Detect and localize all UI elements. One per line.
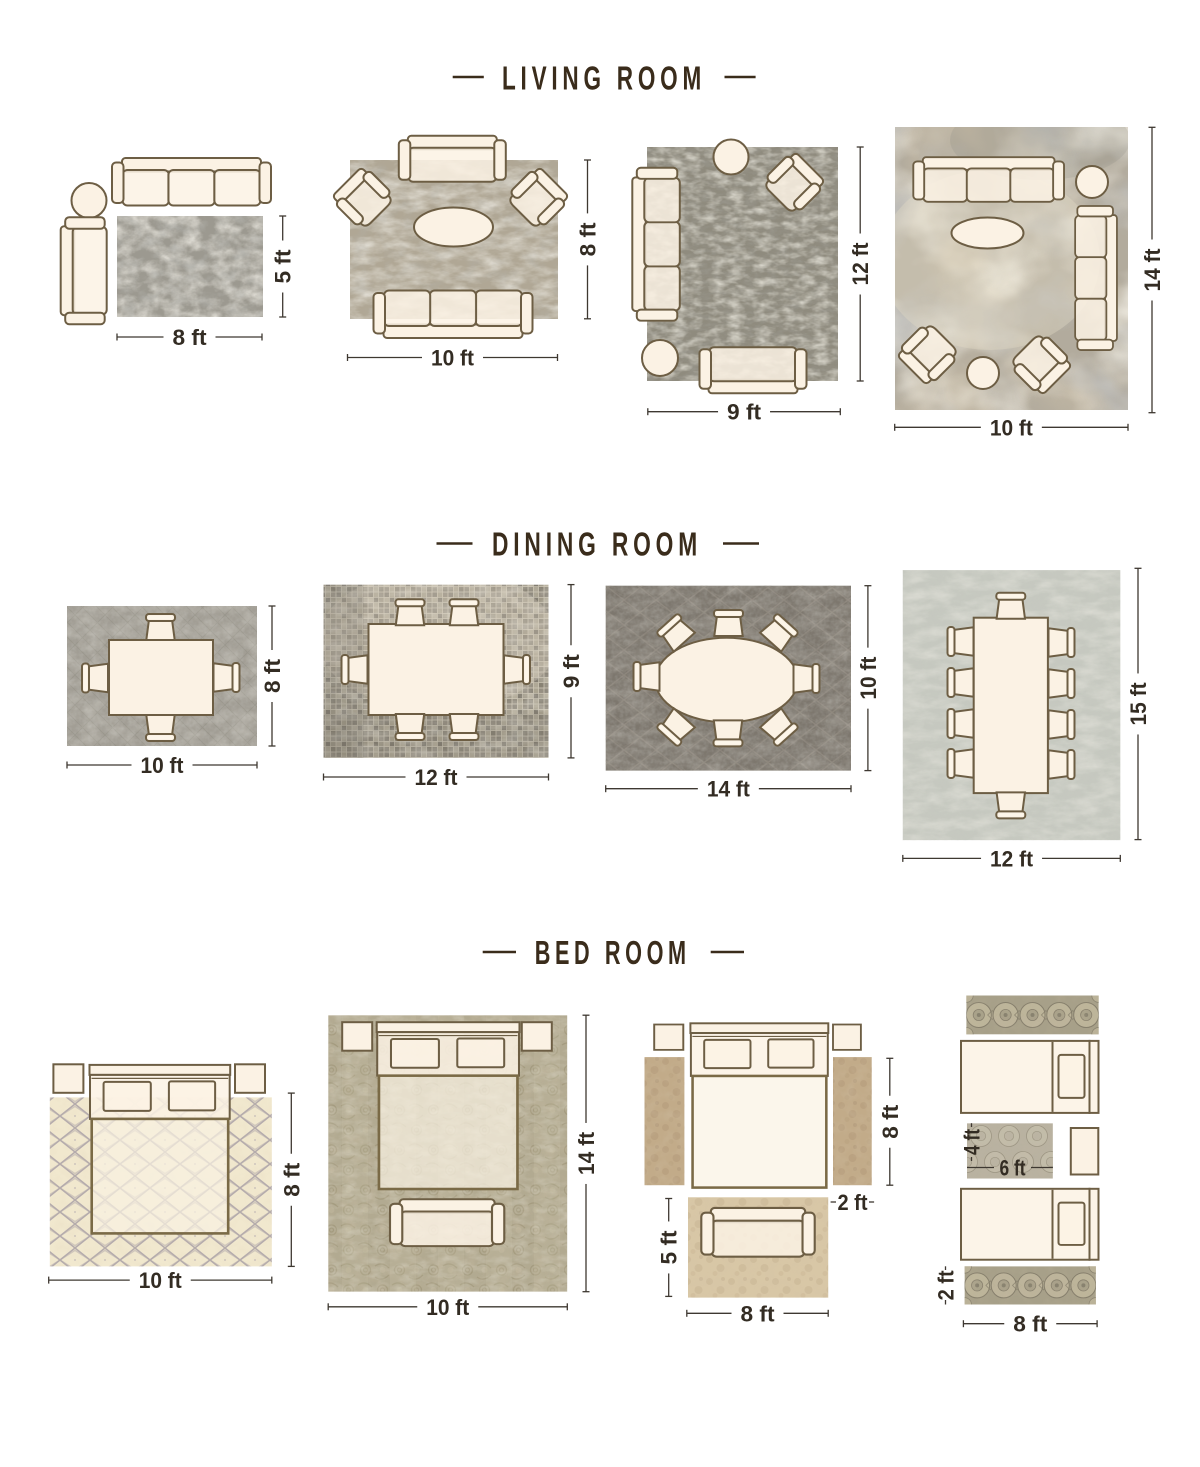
- svg-text:10 ft: 10 ft: [426, 1295, 470, 1320]
- svg-text:10 ft: 10 ft: [139, 1268, 183, 1293]
- svg-text:8 ft: 8 ft: [173, 325, 208, 350]
- svg-text:8 ft: 8 ft: [741, 1301, 776, 1326]
- svg-text:4 ft: 4 ft: [960, 1128, 985, 1155]
- svg-text:12 ft: 12 ft: [415, 765, 459, 790]
- svg-text:12 ft: 12 ft: [990, 846, 1034, 871]
- svg-text:14 ft: 14 ft: [1140, 248, 1165, 292]
- svg-text:9 ft: 9 ft: [559, 654, 584, 689]
- svg-text:6 ft: 6 ft: [1000, 1156, 1027, 1181]
- svg-text:10 ft: 10 ft: [856, 656, 881, 700]
- svg-text:8 ft: 8 ft: [279, 1162, 304, 1197]
- svg-text:14 ft: 14 ft: [707, 777, 751, 802]
- svg-text:10 ft: 10 ft: [431, 346, 475, 371]
- svg-text:LIVING ROOM: LIVING ROOM: [502, 60, 706, 97]
- svg-text:12 ft: 12 ft: [848, 242, 873, 286]
- svg-text:15 ft: 15 ft: [1126, 682, 1151, 726]
- svg-text:14 ft: 14 ft: [574, 1131, 599, 1175]
- svg-text:8 ft: 8 ft: [1013, 1312, 1048, 1337]
- svg-text:10 ft: 10 ft: [990, 415, 1034, 440]
- svg-text:2 ft: 2 ft: [838, 1190, 869, 1215]
- svg-text:5 ft: 5 ft: [657, 1230, 682, 1265]
- svg-text:5 ft: 5 ft: [271, 249, 296, 284]
- svg-text:9 ft: 9 ft: [727, 400, 762, 425]
- svg-text:BED ROOM: BED ROOM: [535, 934, 691, 971]
- svg-text:8 ft: 8 ft: [878, 1104, 903, 1139]
- svg-text:8 ft: 8 ft: [260, 658, 285, 693]
- svg-text:2 ft: 2 ft: [934, 1270, 959, 1301]
- svg-text:8 ft: 8 ft: [576, 222, 601, 257]
- svg-text:DINING ROOM: DINING ROOM: [492, 526, 702, 563]
- svg-text:10 ft: 10 ft: [141, 753, 185, 778]
